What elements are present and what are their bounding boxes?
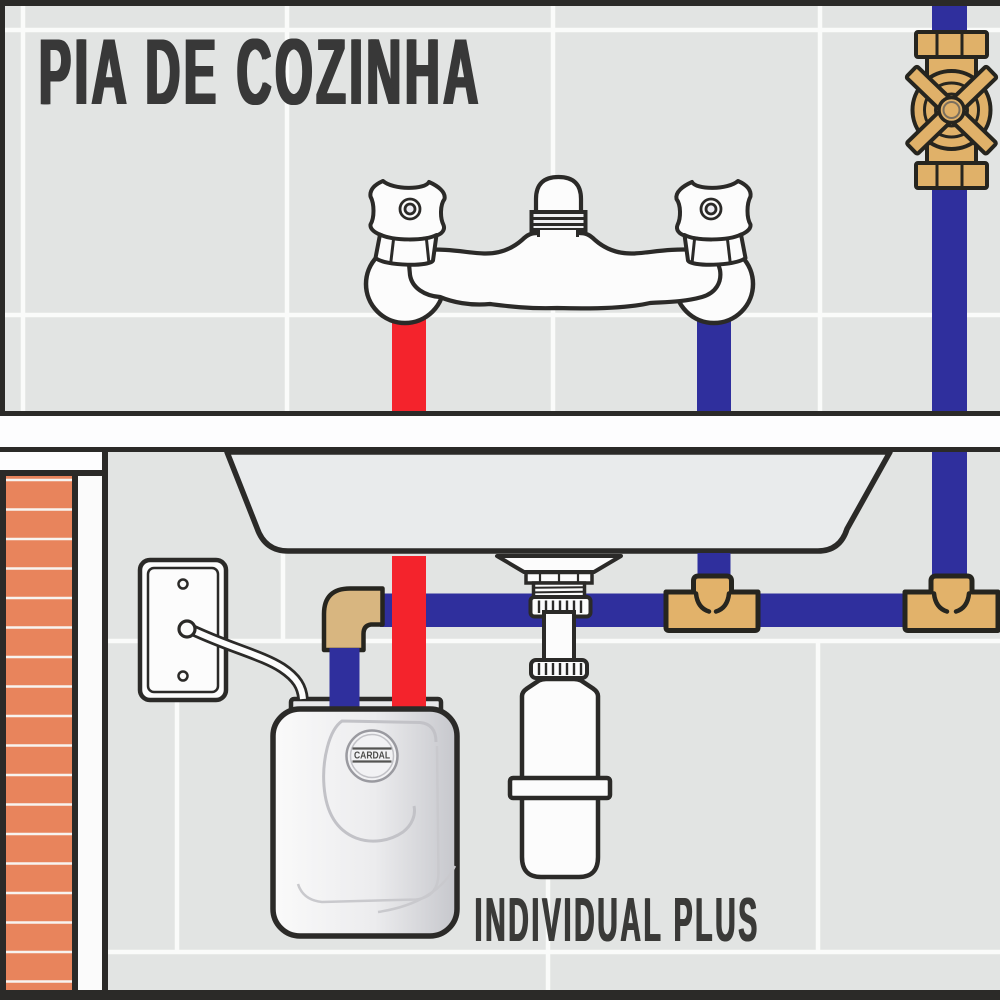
svg-text:PIA DE COZINHA: PIA DE COZINHA	[40, 19, 483, 124]
svg-text:CARDAL: CARDAL	[354, 750, 390, 762]
svg-text:INDIVIDUAL PLUS: INDIVIDUAL PLUS	[475, 885, 760, 955]
